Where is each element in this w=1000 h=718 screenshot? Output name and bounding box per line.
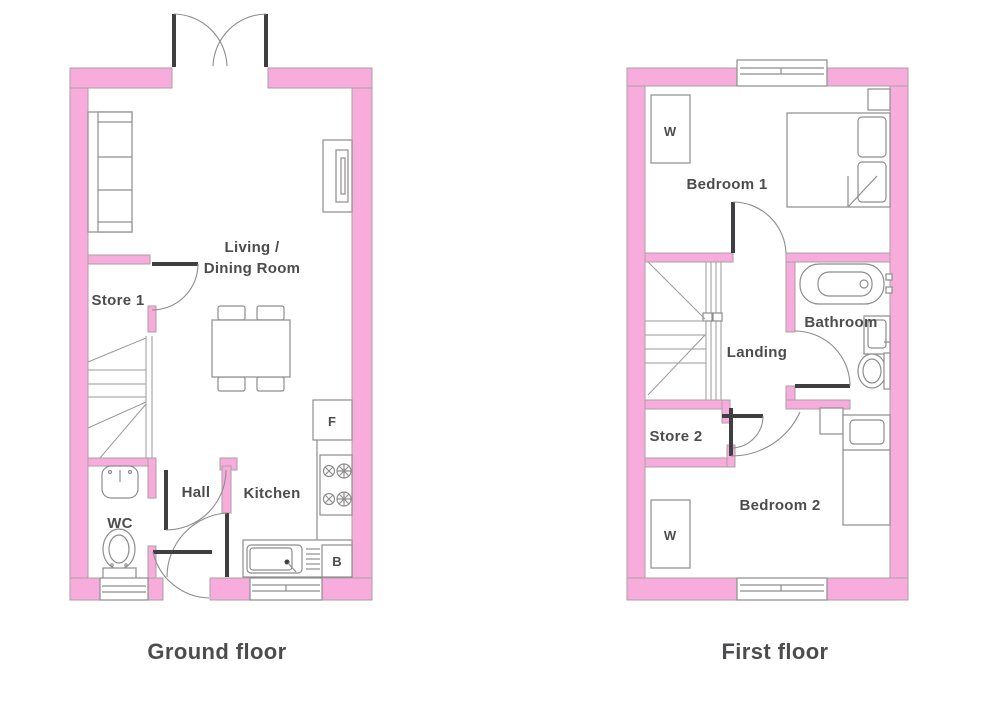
ground-stairs [88,336,152,458]
ground-floor-title: Ground floor [147,639,286,664]
kitchen-hob [317,440,352,540]
kitchen-label: Kitchen [243,485,300,502]
french-doors [174,14,266,67]
floorplan-drawing: F [0,0,1000,718]
bathroom-toilet [858,353,890,389]
store1-door [152,264,198,310]
fridge-unit: F [313,400,352,440]
bedroom2-wardrobe: W [651,500,690,568]
living-dining-label-line2: Dining Room [204,260,301,277]
dining-table [212,306,290,391]
wardrobe2-label: W [664,528,677,543]
first-floor-title: First floor [721,639,828,664]
ground-floor-plan: F [70,14,372,664]
wc-basin [102,466,138,498]
bedroom1-wardrobe: W [651,95,690,163]
landing-label: Landing [727,344,787,361]
hall-label: Hall [182,484,211,501]
tv-unit [323,140,352,212]
wardrobe1-label: W [664,124,677,139]
bathroom-label: Bathroom [804,314,877,331]
bedroom1-window [737,60,827,86]
floorplan-page: F [0,0,1000,718]
wc-label: WC [107,515,133,532]
bedroom2-window [737,578,827,600]
bedroom1-door [733,202,786,253]
bedroom2-label: Bedroom 2 [739,497,820,514]
kitchen-door [167,513,227,577]
bedroom2-bed [820,408,890,525]
sofa [88,112,132,232]
boiler-label: B [332,554,341,569]
bedroom1-bed [787,89,890,207]
store2-label: Store 2 [650,428,703,445]
bedroom1-label: Bedroom 1 [686,176,767,193]
boiler-unit: B [322,545,352,577]
kitchen-window [250,578,322,600]
living-dining-label-line1: Living / [225,239,280,256]
store1-label: Store 1 [92,292,145,309]
first-floor-plan: W W [627,60,908,664]
fridge-label: F [328,414,336,429]
bathroom-door [795,331,850,386]
wc-toilet [103,529,136,580]
wc-window [100,578,148,600]
first-stairs [645,262,722,400]
bathtub [800,264,892,304]
